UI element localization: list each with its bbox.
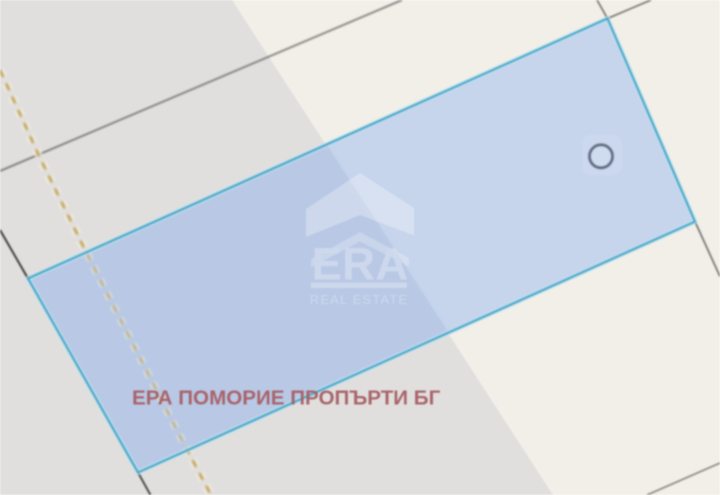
svg-text:REAL ESTATE: REAL ESTATE	[310, 292, 408, 307]
svg-text:ЕРА ПОМОРИЕ ПРОПЪРТИ БГ: ЕРА ПОМОРИЕ ПРОПЪРТИ БГ	[132, 387, 441, 410]
svg-text:ERA: ERA	[312, 239, 409, 290]
